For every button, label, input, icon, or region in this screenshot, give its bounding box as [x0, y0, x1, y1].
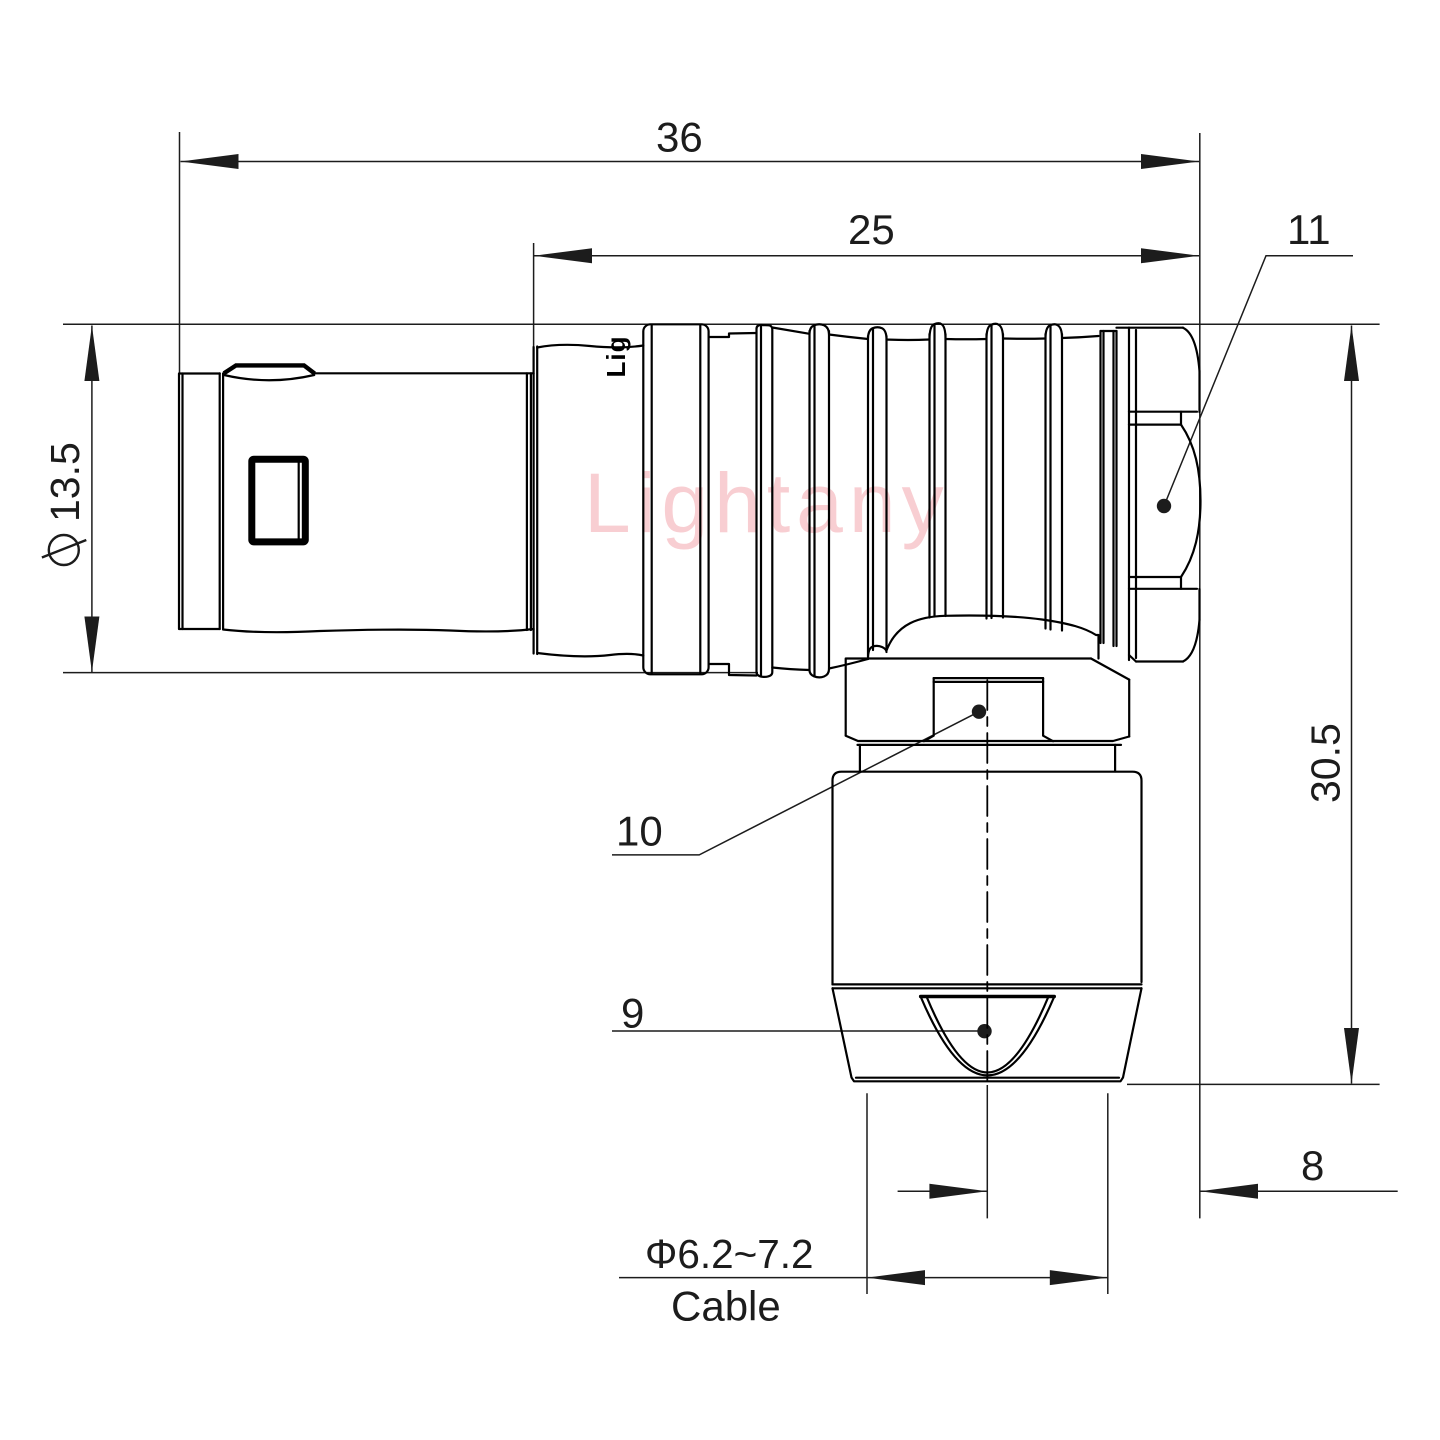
svg-text:Φ6.2~7.2: Φ6.2~7.2: [645, 1231, 814, 1277]
svg-text:36: 36: [656, 114, 703, 161]
svg-text:10: 10: [616, 808, 663, 855]
svg-text:8: 8: [1301, 1142, 1324, 1189]
svg-text:25: 25: [848, 206, 895, 253]
svg-text:13.5: 13.5: [42, 442, 88, 522]
svg-text:11: 11: [1287, 206, 1331, 253]
svg-text:30.5: 30.5: [1303, 723, 1349, 803]
svg-text:Lightany: Lightany: [584, 456, 950, 550]
svg-text:9: 9: [621, 990, 644, 1037]
svg-text:Lig: Lig: [601, 336, 631, 378]
svg-text:Cable: Cable: [671, 1283, 781, 1330]
